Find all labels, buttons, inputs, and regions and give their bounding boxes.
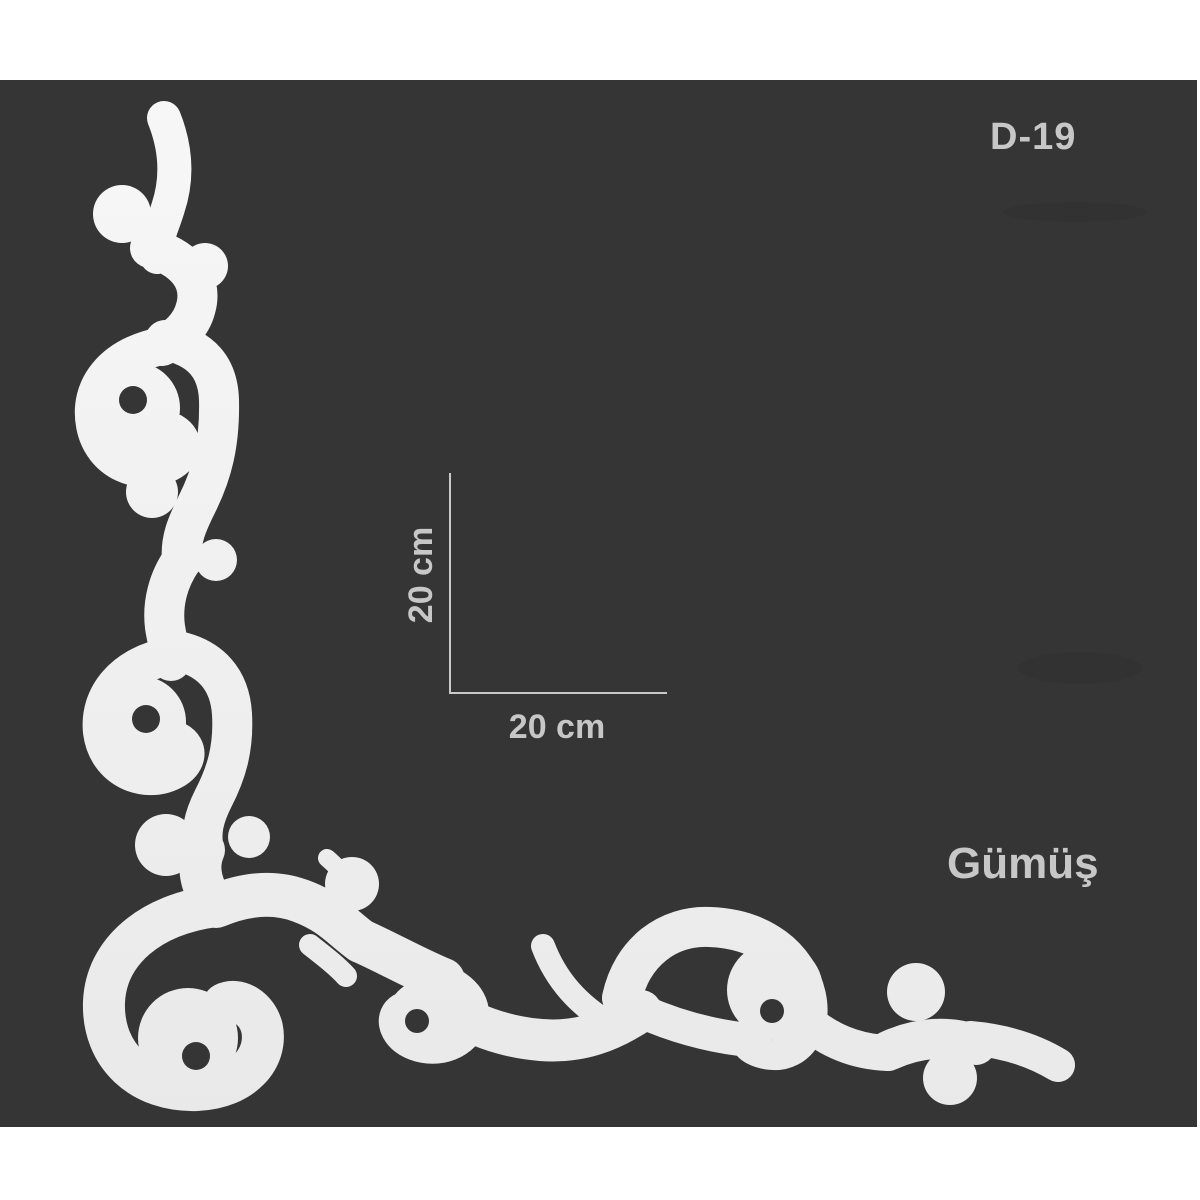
horizontal-dimension-line [449, 692, 667, 694]
vertical-dimension-line [449, 473, 451, 693]
horizontal-dimension-label: 20 cm [509, 710, 605, 744]
vertical-dimension-label: 20 cm [404, 527, 438, 623]
model-code-label: D-19 [990, 118, 1076, 156]
color-name-label: Gümüş [947, 842, 1099, 886]
product-photo-canvas [0, 80, 1197, 1127]
